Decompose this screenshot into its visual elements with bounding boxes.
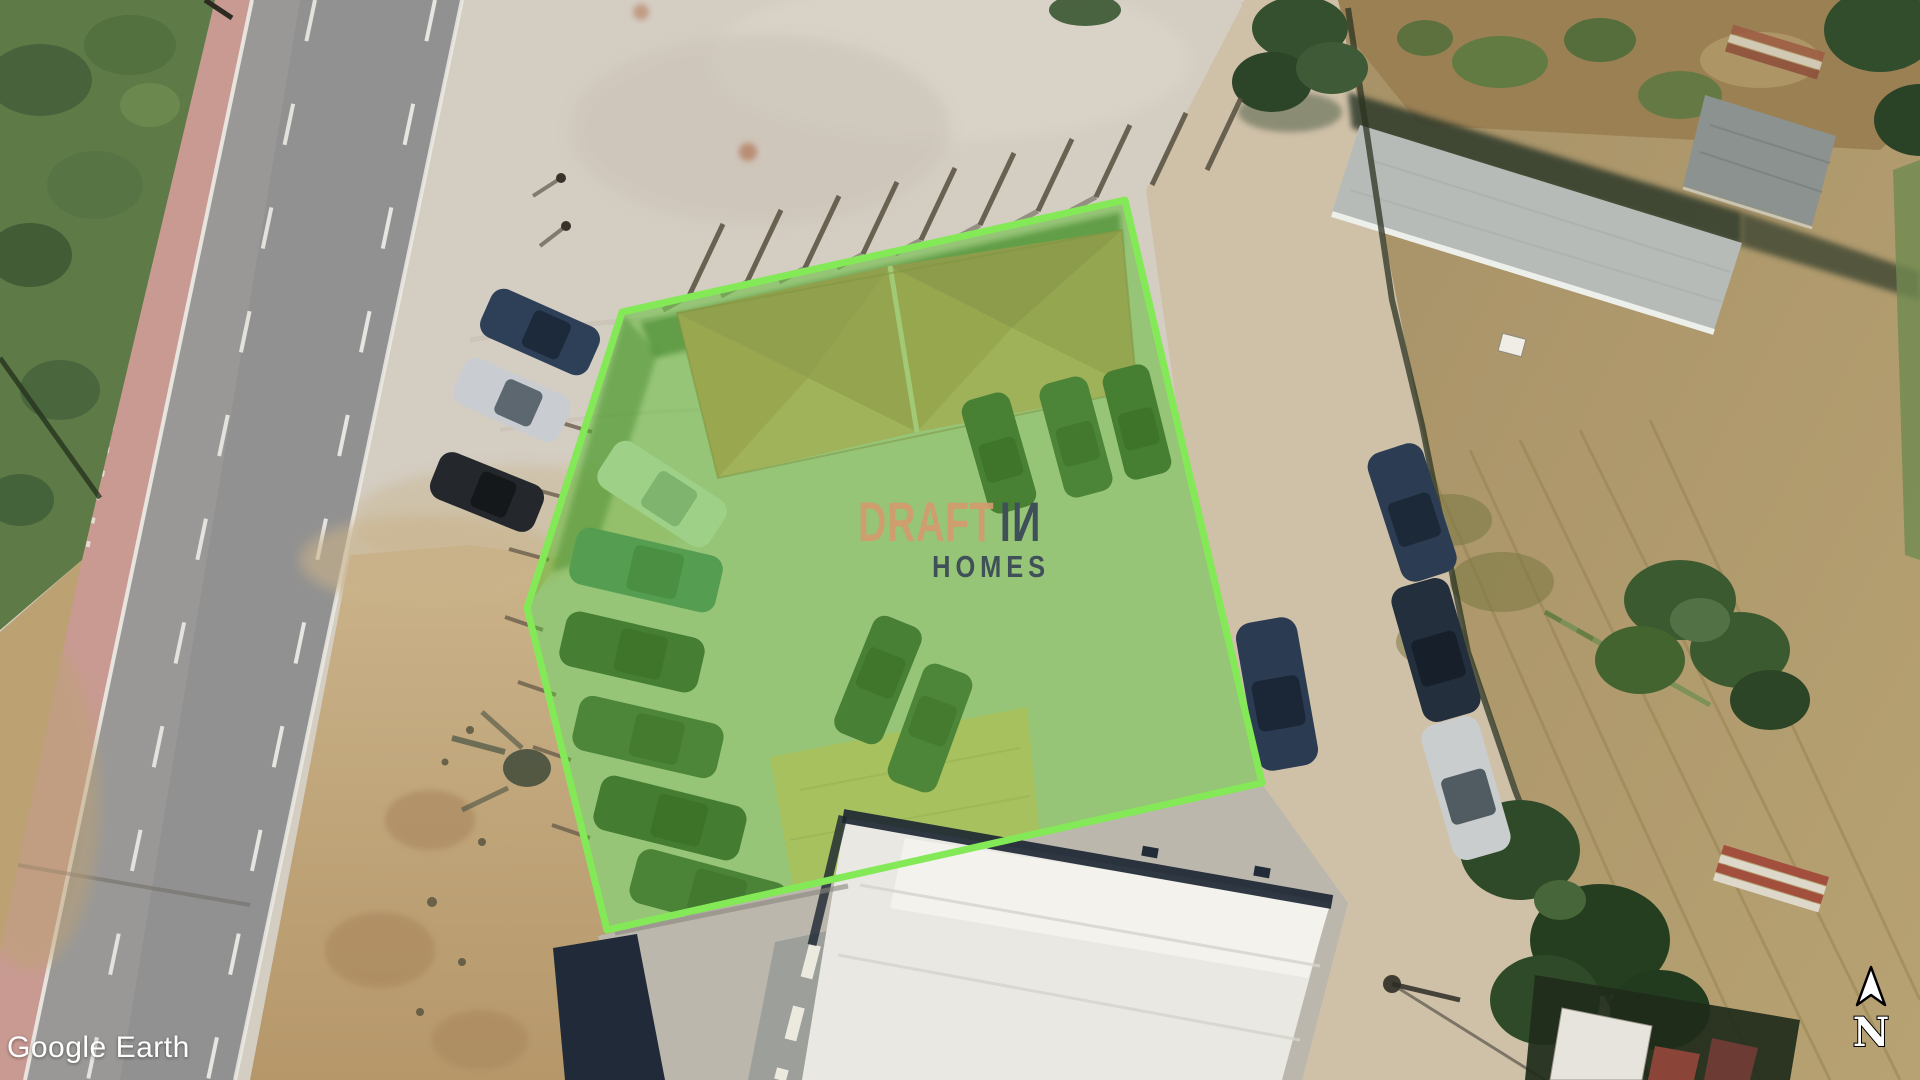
rust-stain (739, 143, 757, 161)
north-compass[interactable]: N (1844, 964, 1898, 1056)
compass-north-label: N (1853, 1009, 1890, 1056)
google-earth-viewport: DRAFTIN HOMES Google Earth N (0, 0, 1920, 1080)
north-arrow-icon: N (1844, 964, 1898, 1056)
tree-shadow (503, 749, 551, 787)
aerial-basemap (0, 0, 1920, 1080)
google-earth-attribution: Google Earth (7, 1031, 190, 1065)
